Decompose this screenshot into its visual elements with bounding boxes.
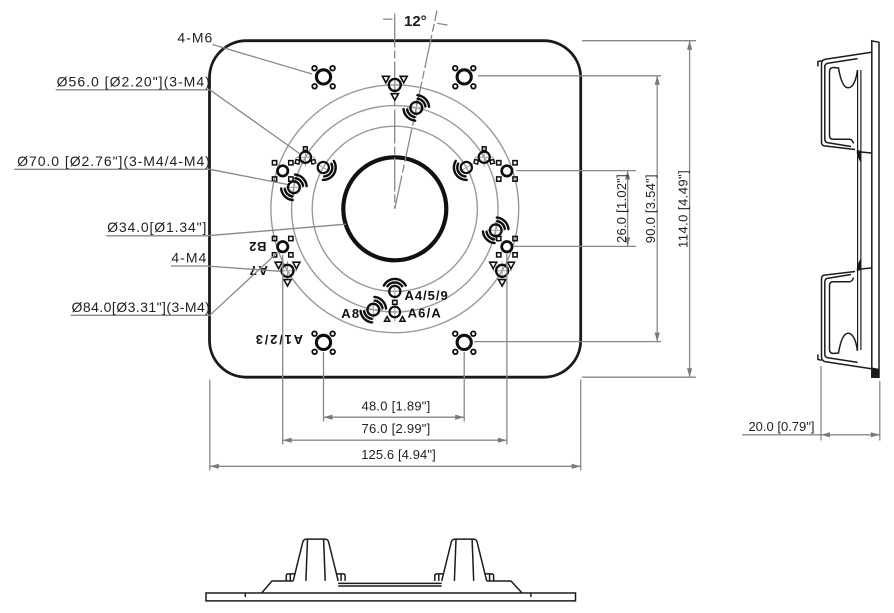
svg-text:A1/2/3: A1/2/3 [254, 332, 303, 347]
svg-text:48.0 [1.89"]: 48.0 [1.89"] [361, 399, 430, 414]
svg-text:Ø34.0[Ø1.34"]: Ø34.0[Ø1.34"] [107, 219, 207, 235]
svg-text:A6/A: A6/A [408, 306, 442, 321]
svg-text:A4/5/9: A4/5/9 [404, 288, 448, 303]
svg-text:26.0 [1.02"]: 26.0 [1.02"] [614, 174, 629, 243]
svg-text:A8: A8 [341, 306, 360, 321]
svg-text:Ø70.0 [Ø2.76"](3-M4/4-M4): Ø70.0 [Ø2.76"](3-M4/4-M4) [17, 153, 211, 169]
svg-text:4-M6: 4-M6 [177, 30, 213, 46]
svg-text:125.6 [4.94"]: 125.6 [4.94"] [361, 447, 436, 462]
svg-text:20.0 [0.79"]: 20.0 [0.79"] [748, 419, 814, 434]
svg-text:4-M4: 4-M4 [171, 249, 207, 265]
svg-text:Ø56.0 [Ø2.20"](3-M4): Ø56.0 [Ø2.20"](3-M4) [57, 74, 211, 90]
svg-text:12°: 12° [404, 13, 427, 30]
svg-text:Ø84.0[Ø3.31"](3-M4): Ø84.0[Ø3.31"](3-M4) [72, 299, 211, 315]
svg-text:114.0 [4.49"]: 114.0 [4.49"] [676, 170, 691, 248]
svg-text:90.0 [3.54"]: 90.0 [3.54"] [643, 174, 658, 243]
svg-text:76.0 [2.99"]: 76.0 [2.99"] [361, 421, 430, 436]
svg-text:B2: B2 [249, 239, 267, 254]
